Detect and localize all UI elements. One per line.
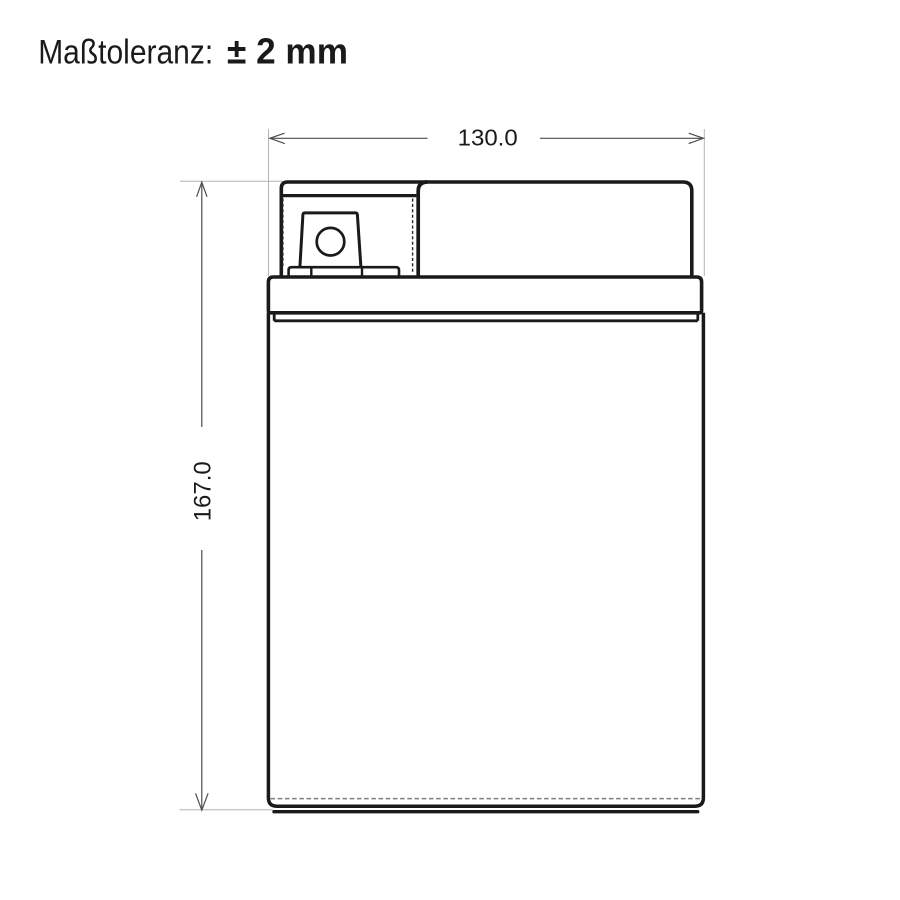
svg-text:± 2 mm: ± 2 mm	[227, 31, 348, 72]
svg-text:Maßtoleranz:: Maßtoleranz:	[38, 34, 213, 72]
svg-text:167.0: 167.0	[190, 461, 217, 521]
svg-text:130.0: 130.0	[458, 124, 518, 150]
